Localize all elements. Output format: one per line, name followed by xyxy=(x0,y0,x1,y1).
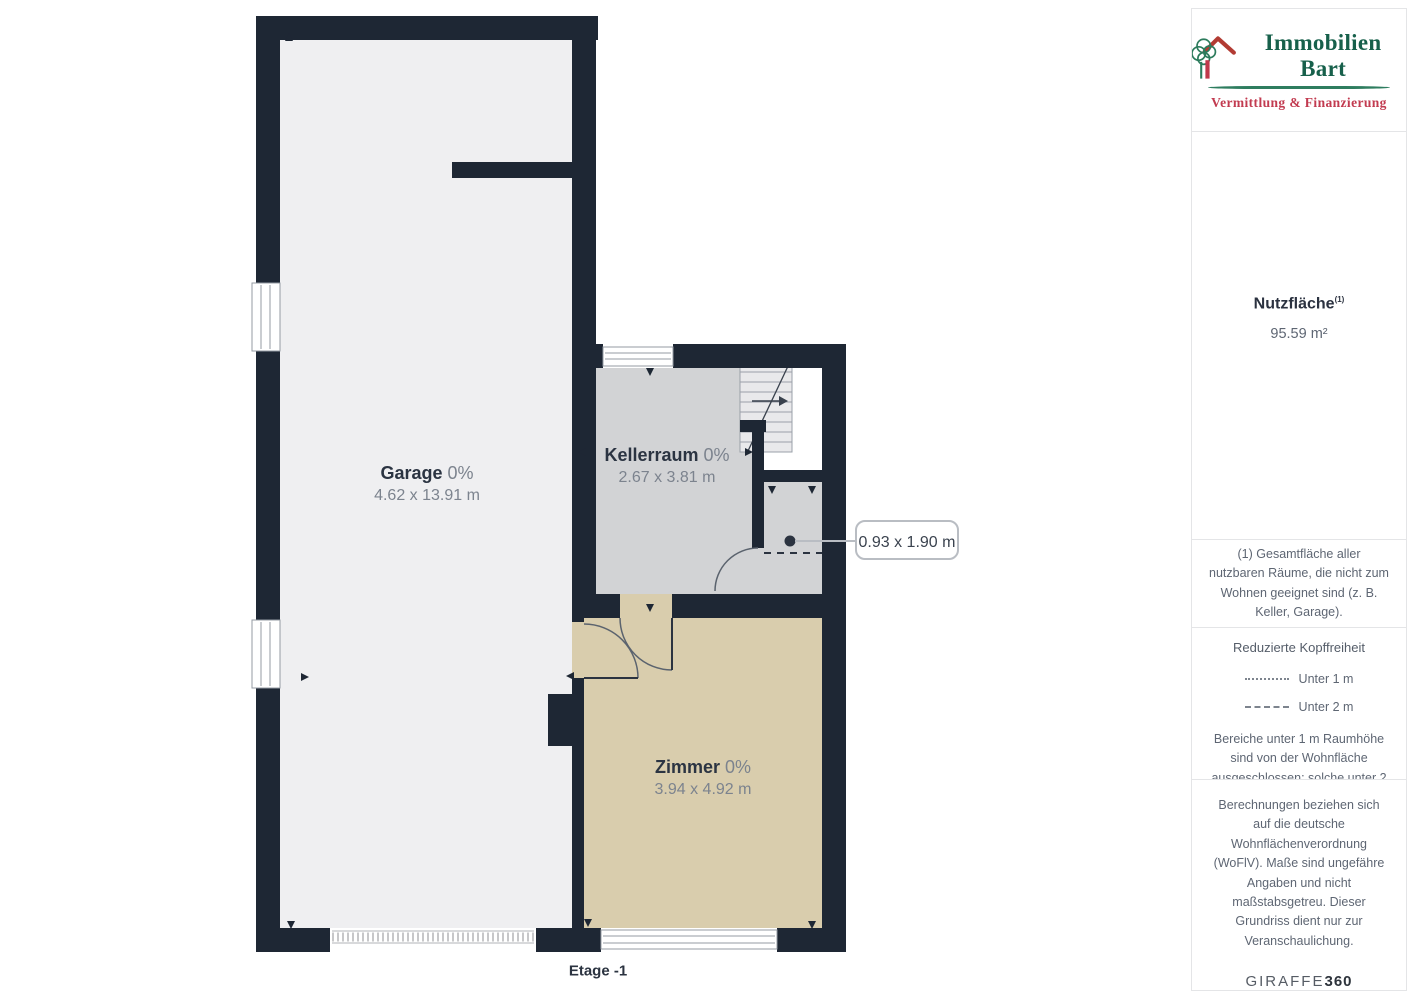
footnote-card: (1) Gesamtfläche aller nutzbaren Räume, … xyxy=(1191,539,1407,628)
garage-door-icon xyxy=(332,931,534,943)
room-dimensions: 4.62 x 13.91 m xyxy=(374,485,480,507)
room-percent: 0% xyxy=(725,757,751,777)
headroom-card: Reduzierte Kopffreiheit Unter 1 m Unter … xyxy=(1191,627,1407,780)
legend-label: Unter 1 m xyxy=(1299,672,1354,686)
footnote-text: (1) Gesamtfläche aller nutzbaren Räume, … xyxy=(1192,545,1406,623)
tree-roof-logo-icon xyxy=(1192,29,1237,83)
company-tagline: Vermittlung & Finanzierung xyxy=(1211,95,1387,111)
room-label-zimmer: Zimmer 0% 3.94 x 4.92 m xyxy=(655,755,752,801)
legend-under-1m: Unter 1 m xyxy=(1245,672,1354,686)
callout-box: 0.93 x 1.90 m xyxy=(856,521,958,559)
room-percent: 0% xyxy=(448,463,474,483)
callout-label: 0.93 x 1.90 m xyxy=(859,534,956,551)
room-name: Zimmer xyxy=(655,757,720,777)
logo-underline xyxy=(1208,86,1390,89)
zimmer-window-bottom xyxy=(601,930,777,949)
room-label-garage: Garage 0% 4.62 x 13.91 m xyxy=(374,461,480,507)
usable-area-card: Nutzfläche(1) 95.59 m² xyxy=(1191,131,1407,541)
company-logo: Immobilien Bart Vermittlung & Finanzieru… xyxy=(1192,29,1406,111)
footnote-mark: (1) xyxy=(1335,295,1345,304)
measure-dot xyxy=(785,536,796,547)
floor-level-label: Etage -1 xyxy=(569,963,627,980)
legend-under-2m: Unter 2 m xyxy=(1245,700,1354,714)
keller-window-top xyxy=(603,347,673,366)
stairs-icon xyxy=(740,362,792,452)
provider-suffix: 360 xyxy=(1324,973,1352,990)
headroom-title: Reduzierte Kopffreiheit xyxy=(1233,640,1365,655)
legend-label: Unter 2 m xyxy=(1299,700,1354,714)
disclaimer-card: Berechnungen beziehen sich auf die deuts… xyxy=(1191,779,1407,991)
door-opening-garage-zimmer xyxy=(572,622,584,678)
room-name: Kellerraum xyxy=(604,445,698,465)
usable-area-title: Nutzfläche(1) xyxy=(1254,295,1345,313)
door-opening-keller-zimmer xyxy=(620,594,672,618)
dashed-line-icon xyxy=(1245,706,1289,708)
garage-window-left-1 xyxy=(252,283,280,351)
provider-name: GIRAFFE xyxy=(1245,973,1324,990)
floorplan-page: 0.93 x 1.90 m Garage 0% 4.62 x 13.91 m K… xyxy=(0,0,1414,1000)
garage-window-left-2 xyxy=(252,620,280,688)
dotted-line-icon xyxy=(1245,678,1289,680)
logo-card: Immobilien Bart Vermittlung & Finanzieru… xyxy=(1191,8,1407,132)
room-name: Garage xyxy=(380,463,442,483)
provider-logo: GIRAFFE360 xyxy=(1245,973,1352,990)
room-dimensions: 2.67 x 3.81 m xyxy=(604,467,729,489)
room-label-kellerraum: Kellerraum 0% 2.67 x 3.81 m xyxy=(604,443,729,489)
room-percent: 0% xyxy=(704,445,730,465)
room-dimensions: 3.94 x 4.92 m xyxy=(655,779,752,801)
disclaimer-text: Berechnungen beziehen sich auf die deuts… xyxy=(1192,796,1406,951)
usable-area-value: 95.59 m² xyxy=(1270,326,1327,342)
company-name: Immobilien Bart xyxy=(1240,30,1406,82)
info-sidebar: Immobilien Bart Vermittlung & Finanzieru… xyxy=(1191,8,1407,991)
